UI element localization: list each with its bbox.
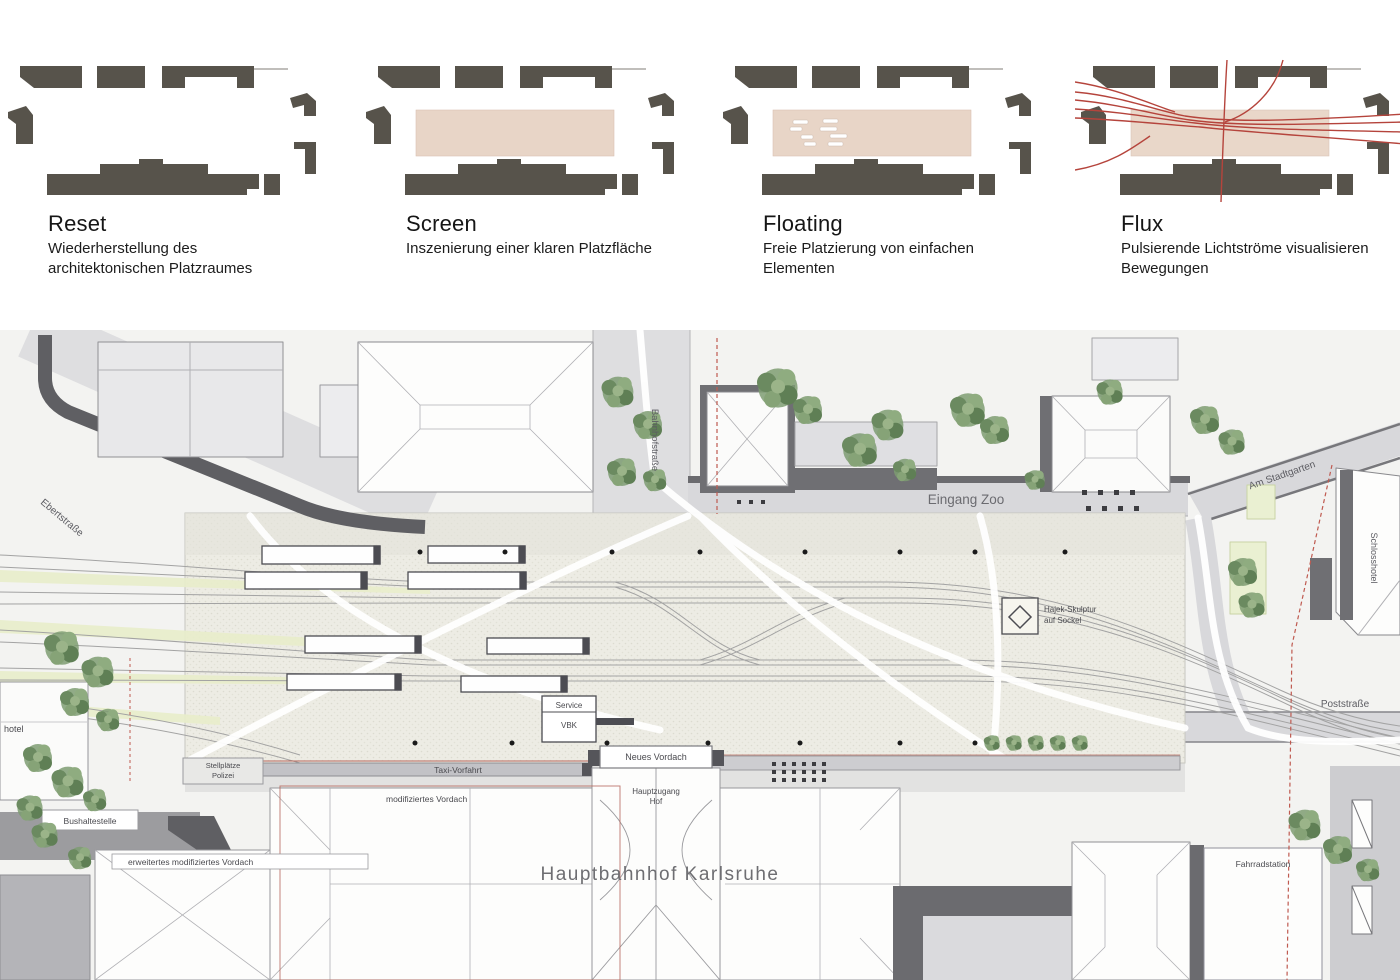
- street-label-poststrasse: Poststraße: [1321, 699, 1370, 710]
- label-hotel-west: hotel: [4, 724, 24, 734]
- concept-title: Floating: [763, 211, 1065, 237]
- street-label-bahnhofstrasse: Bahnhofstraße: [649, 409, 660, 471]
- concept-subtitle: Inszenierung einer klaren Platzfläche: [406, 239, 674, 259]
- stellplaetze-label-line1: Stellplätze: [206, 761, 241, 770]
- concept-diagram-reset: [2, 52, 332, 207]
- site-plan-drawing: Service VBK Hajek-Skulptur auf Sockel Ne…: [0, 330, 1400, 980]
- neues-vordach-box: Neues Vordach: [588, 746, 724, 768]
- concept-subtitle: Wiederherstellung des architektonischen …: [48, 239, 316, 280]
- site-plan: Service VBK Hajek-Skulptur auf Sockel Ne…: [0, 330, 1400, 980]
- stellplaetze-label-line2: Polizei: [212, 771, 234, 780]
- label-eingang-zoo: Eingang Zoo: [928, 492, 1005, 507]
- neues-vordach-label: Neues Vordach: [625, 752, 687, 762]
- concept-row: Reset Wiederherstellung des architektoni…: [0, 0, 1400, 330]
- concept-title: Flux: [1121, 211, 1400, 237]
- hajek-label-line1: Hajek-Skulptur: [1044, 605, 1097, 614]
- hajek-label-line2: auf Sockel: [1044, 616, 1082, 625]
- stellplaetze-polizei-box: Stellplätze Polizei: [183, 758, 263, 784]
- concept-title: Screen: [406, 211, 708, 237]
- concept-floating: Floating Freie Platzierung von einfachen…: [717, 52, 1065, 280]
- concept-subtitle: Pulsierende Lichtströme visualisieren Be…: [1121, 239, 1389, 280]
- label-taxi-vorfahrt: Taxi-Vorfahrt: [434, 765, 482, 775]
- concept-subtitle: Freie Platzierung von einfachen Elemente…: [763, 239, 1031, 280]
- label-hauptzugang-line2: Hof: [650, 797, 663, 806]
- concept-diagram-screen: [360, 52, 690, 207]
- bushaltestelle-label: Bushaltestelle: [64, 816, 117, 826]
- page: Reset Wiederherstellung des architektoni…: [0, 0, 1400, 980]
- concept-flux: Flux Pulsierende Lichtströme visualisier…: [1075, 52, 1400, 280]
- label-fahrradstation: Fahrradstation: [1236, 859, 1291, 869]
- service-label-line1: Service: [556, 701, 583, 710]
- concept-screen: Screen Inszenierung einer klaren Platzfl…: [360, 52, 708, 259]
- concept-title: Reset: [48, 211, 350, 237]
- concept-reset: Reset Wiederherstellung des architektoni…: [2, 52, 350, 280]
- service-label-line2: VBK: [561, 721, 578, 730]
- label-hauptbahnhof: Hauptbahnhof Karlsruhe: [541, 864, 780, 885]
- label-erweitertes-vordach: erweitertes modifiziertes Vordach: [128, 857, 253, 867]
- concept-diagram-flux: [1075, 52, 1400, 207]
- label-schlosshotel: Schlosshotel: [1369, 532, 1379, 583]
- label-modifiziertes-vordach: modifiziertes Vordach: [386, 794, 468, 804]
- bushaltestelle-box: Bushaltestelle: [42, 810, 138, 830]
- label-hauptzugang-line1: Hauptzugang: [632, 787, 680, 796]
- concept-diagram-floating: [717, 52, 1047, 207]
